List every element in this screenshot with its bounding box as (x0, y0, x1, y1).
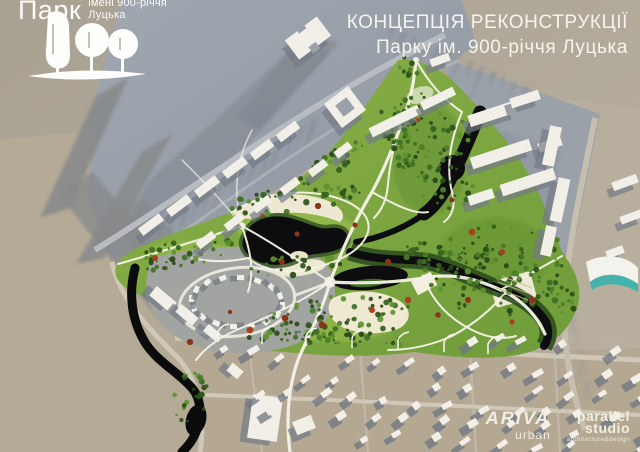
title-line-1: КОНЦЕПЦІЯ РЕКОНСТРУКЦІЇ (347, 10, 628, 35)
studio-credits: ARiVA urban parallel studio architecture… (486, 410, 630, 446)
logo-swoosh (28, 70, 146, 79)
poster-title: КОНЦЕПЦІЯ РЕКОНСТРУКЦІЇ Парку ім. 900-рі… (347, 10, 628, 60)
ariva-tag: urban (486, 429, 551, 441)
parallel-studio-tag: architecture&design (567, 434, 630, 446)
tree-trunk (121, 54, 124, 74)
ariva-name: ARiVA (484, 410, 552, 426)
park-logo: Парк імені 900-річчя Луцька (14, 4, 174, 22)
parallel-studio-logo: parallel studio architecture&design (567, 410, 630, 446)
tree-icon (75, 23, 109, 57)
ariva-urban-logo: ARiVA urban (486, 410, 551, 441)
tree-icon (46, 11, 70, 68)
park-reconstruction-poster: Парк імені 900-річчя Луцька КОНЦЕПЦІЯ РЕ… (0, 0, 640, 452)
logo-trees-icon (20, 4, 152, 80)
title-line-2: Парку ім. 900-річчя Луцька (347, 35, 628, 60)
